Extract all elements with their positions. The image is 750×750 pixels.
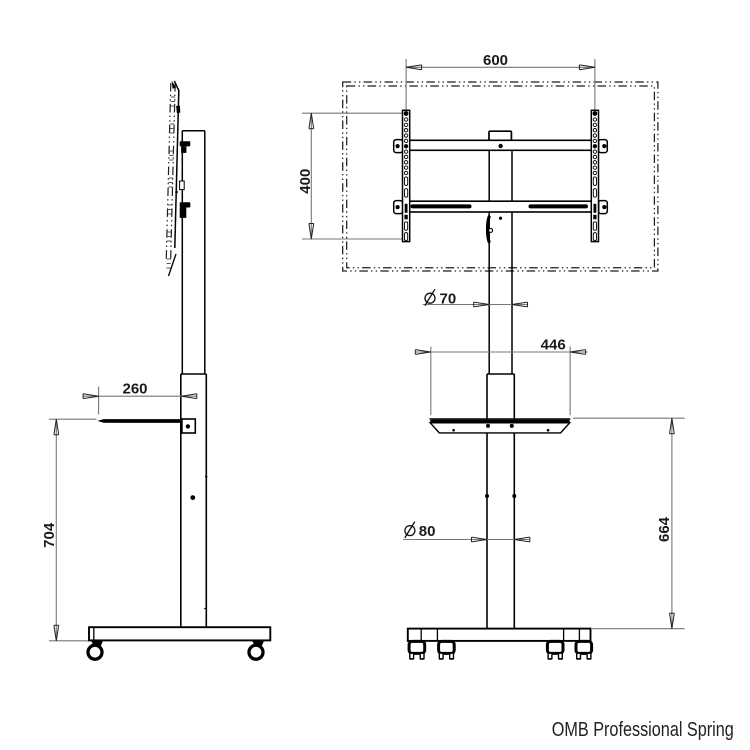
svg-text:664: 664: [656, 516, 673, 542]
svg-text:70: 70: [440, 290, 457, 307]
svg-text:704: 704: [41, 522, 58, 548]
svg-text:OMB Professional Spring: OMB Professional Spring: [552, 719, 734, 741]
svg-text:260: 260: [122, 380, 147, 397]
svg-text:400: 400: [297, 169, 314, 194]
svg-text:446: 446: [541, 337, 566, 354]
svg-text:80: 80: [419, 523, 436, 540]
svg-text:600: 600: [483, 52, 508, 69]
